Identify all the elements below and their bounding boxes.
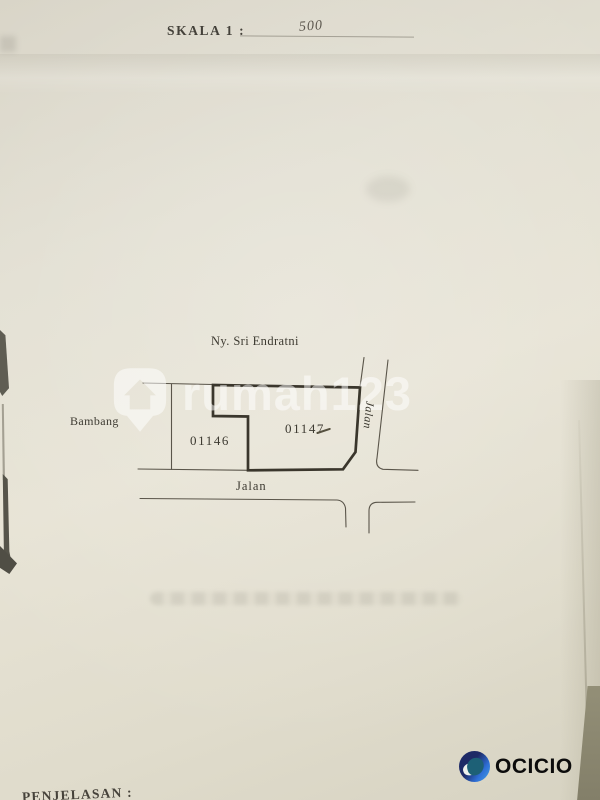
neighbor-name-label: Bambang — [70, 414, 119, 429]
brand-logo: OCICIO — [459, 751, 573, 782]
scanned-plot-document-photo: SKALA 1 : 500 rumah123 Ny. Sri Endratni … — [0, 0, 600, 800]
ocicio-circle-icon — [459, 751, 490, 782]
road-bottom-bottom-edge-right — [369, 502, 415, 533]
parcel-map-drawing — [0, 0, 600, 800]
road-bottom-top-edge — [138, 469, 250, 470]
road-right-left-edge-upper — [360, 358, 364, 388]
road-right-right-edge — [377, 360, 418, 470]
road-label-horizontal: Jalan — [236, 479, 267, 494]
parcel-number-right: 01147 — [285, 421, 325, 437]
road-bottom-bottom-edge-left — [140, 499, 346, 528]
brand-logo-text: OCICIO — [495, 755, 573, 779]
owner-name-label: Ny. Sri Endratni — [211, 334, 299, 349]
parcel-number-left: 01146 — [190, 433, 230, 449]
parcel-top-line — [143, 383, 213, 385]
